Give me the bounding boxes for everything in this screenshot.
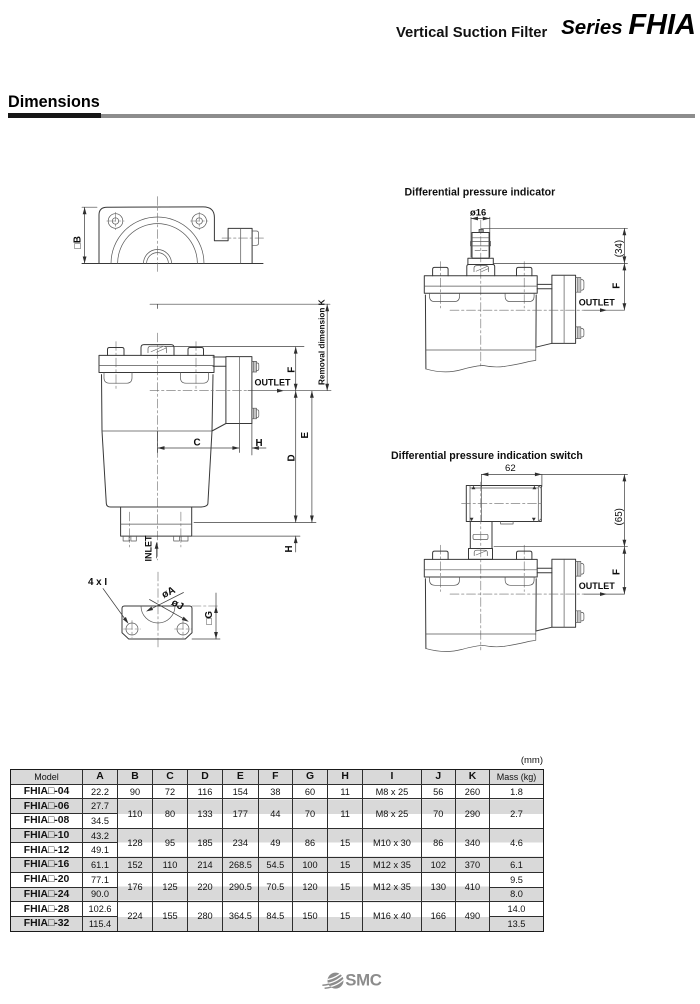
svg-text:Differential pressure indicato: Differential pressure indicator [405,186,556,198]
svg-text:Removal dimension K: Removal dimension K [317,299,326,385]
svg-text:OUTLET: OUTLET [255,378,291,388]
svg-text:E: E [300,432,311,439]
svg-text:F: F [286,367,297,373]
svg-text:C: C [194,437,201,448]
svg-text:(65): (65) [614,508,625,525]
svg-text:4 x I: 4 x I [88,577,107,588]
svg-text:ø16: ø16 [470,206,486,217]
svg-text:OUTLET: OUTLET [579,297,615,307]
svg-text:D: D [286,454,297,461]
svg-text:OUTLET: OUTLET [579,581,615,591]
svg-text:62: 62 [505,463,516,474]
svg-text:F: F [612,569,623,575]
svg-text:øJ: øJ [169,597,185,612]
svg-text:(34): (34) [614,240,625,257]
svg-text:Differential pressure indicati: Differential pressure indication switch [391,450,583,462]
svg-text:H: H [284,545,295,552]
svg-text:□B: □B [73,236,84,249]
svg-text:H: H [256,438,263,449]
svg-text:INLET: INLET [144,535,154,562]
svg-text:SMC: SMC [345,971,382,990]
svg-text:□G: □G [204,611,215,625]
svg-text:F: F [612,283,623,289]
